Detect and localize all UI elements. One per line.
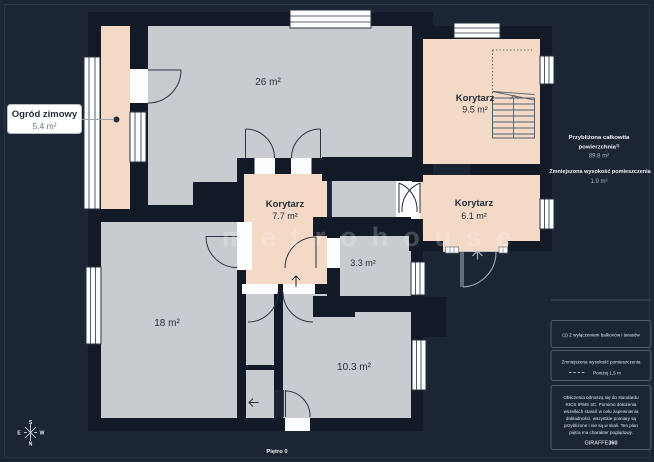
svg-text:piętra ma charakter poglądowy.: piętra ma charakter poglądowy. — [569, 430, 633, 435]
svg-text:dokładności, wszystkie pomiary: dokładności, wszystkie pomiary są — [566, 416, 637, 421]
svg-text:Zmniejszona wysokość pomieszcz: Zmniejszona wysokość pomieszczenia — [549, 169, 651, 175]
svg-text:Korytarz: Korytarz — [266, 199, 305, 210]
svg-text:Piętro 0: Piętro 0 — [266, 449, 287, 455]
svg-text:Ogród zimowy: Ogród zimowy — [12, 109, 78, 120]
svg-text:powierzchnia1): powierzchnia1) — [579, 144, 620, 151]
svg-text:metrohouse: metrohouse — [222, 222, 527, 252]
svg-text:Poniżej 1,5 m: Poniżej 1,5 m — [593, 371, 621, 376]
svg-text:W: W — [40, 431, 45, 437]
svg-text:10.3 m²: 10.3 m² — [337, 362, 372, 373]
svg-text:Przybliżona całkowita: Przybliżona całkowita — [569, 135, 631, 141]
svg-text:GIRAFFE360: GIRAFFE360 — [584, 441, 617, 447]
svg-text:7.7 m²: 7.7 m² — [272, 211, 298, 221]
svg-text:1.9 m²: 1.9 m² — [590, 179, 607, 185]
svg-text:18 m²: 18 m² — [154, 318, 180, 329]
svg-text:6.1 m²: 6.1 m² — [461, 211, 487, 221]
svg-text:5.4 m²: 5.4 m² — [32, 121, 56, 131]
svg-text:N: N — [29, 442, 33, 448]
svg-text:wszelkich starań w celu zapewn: wszelkich starań w celu zapewnienia — [564, 409, 639, 414]
svg-text:3.3 m²: 3.3 m² — [350, 258, 376, 268]
svg-text:przybliżone i nie są w skali.: przybliżone i nie są w skali. Ten plan — [564, 423, 638, 428]
svg-text:Korytarz: Korytarz — [455, 198, 494, 209]
svg-text:Zmniejszona wysokość pomieszcz: Zmniejszona wysokość pomieszczenia — [562, 360, 641, 365]
svg-text:Korytarz: Korytarz — [456, 93, 495, 104]
svg-text:26 m²: 26 m² — [255, 77, 281, 88]
svg-text:89.8 m²: 89.8 m² — [589, 154, 609, 160]
svg-text:(1) Z wyłączeniem balkonów i t: (1) Z wyłączeniem balkonów i tarasów — [562, 333, 640, 338]
svg-text:9.5 m²: 9.5 m² — [462, 105, 488, 115]
svg-text:RICS IPMS 3C. Pomimo dołożenia: RICS IPMS 3C. Pomimo dołożenia — [566, 402, 637, 407]
svg-text:Obliczenia odnoszą się do stan: Obliczenia odnoszą się do standardu — [563, 395, 639, 400]
